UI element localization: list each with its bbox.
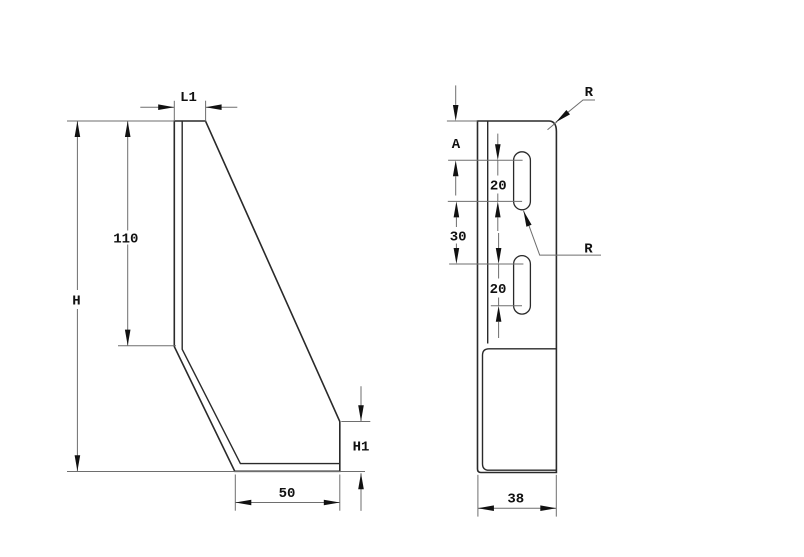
svg-text:H: H bbox=[72, 294, 80, 310]
svg-text:20: 20 bbox=[490, 282, 507, 298]
svg-text:38: 38 bbox=[507, 492, 524, 508]
svg-text:20: 20 bbox=[490, 178, 507, 194]
svg-text:50: 50 bbox=[279, 486, 296, 502]
svg-text:30: 30 bbox=[450, 229, 467, 245]
svg-text:110: 110 bbox=[113, 232, 138, 248]
svg-text:L1: L1 bbox=[180, 90, 197, 106]
svg-text:R: R bbox=[585, 85, 594, 101]
svg-text:R: R bbox=[584, 241, 593, 257]
svg-text:H1: H1 bbox=[353, 440, 370, 456]
svg-text:A: A bbox=[452, 137, 461, 153]
